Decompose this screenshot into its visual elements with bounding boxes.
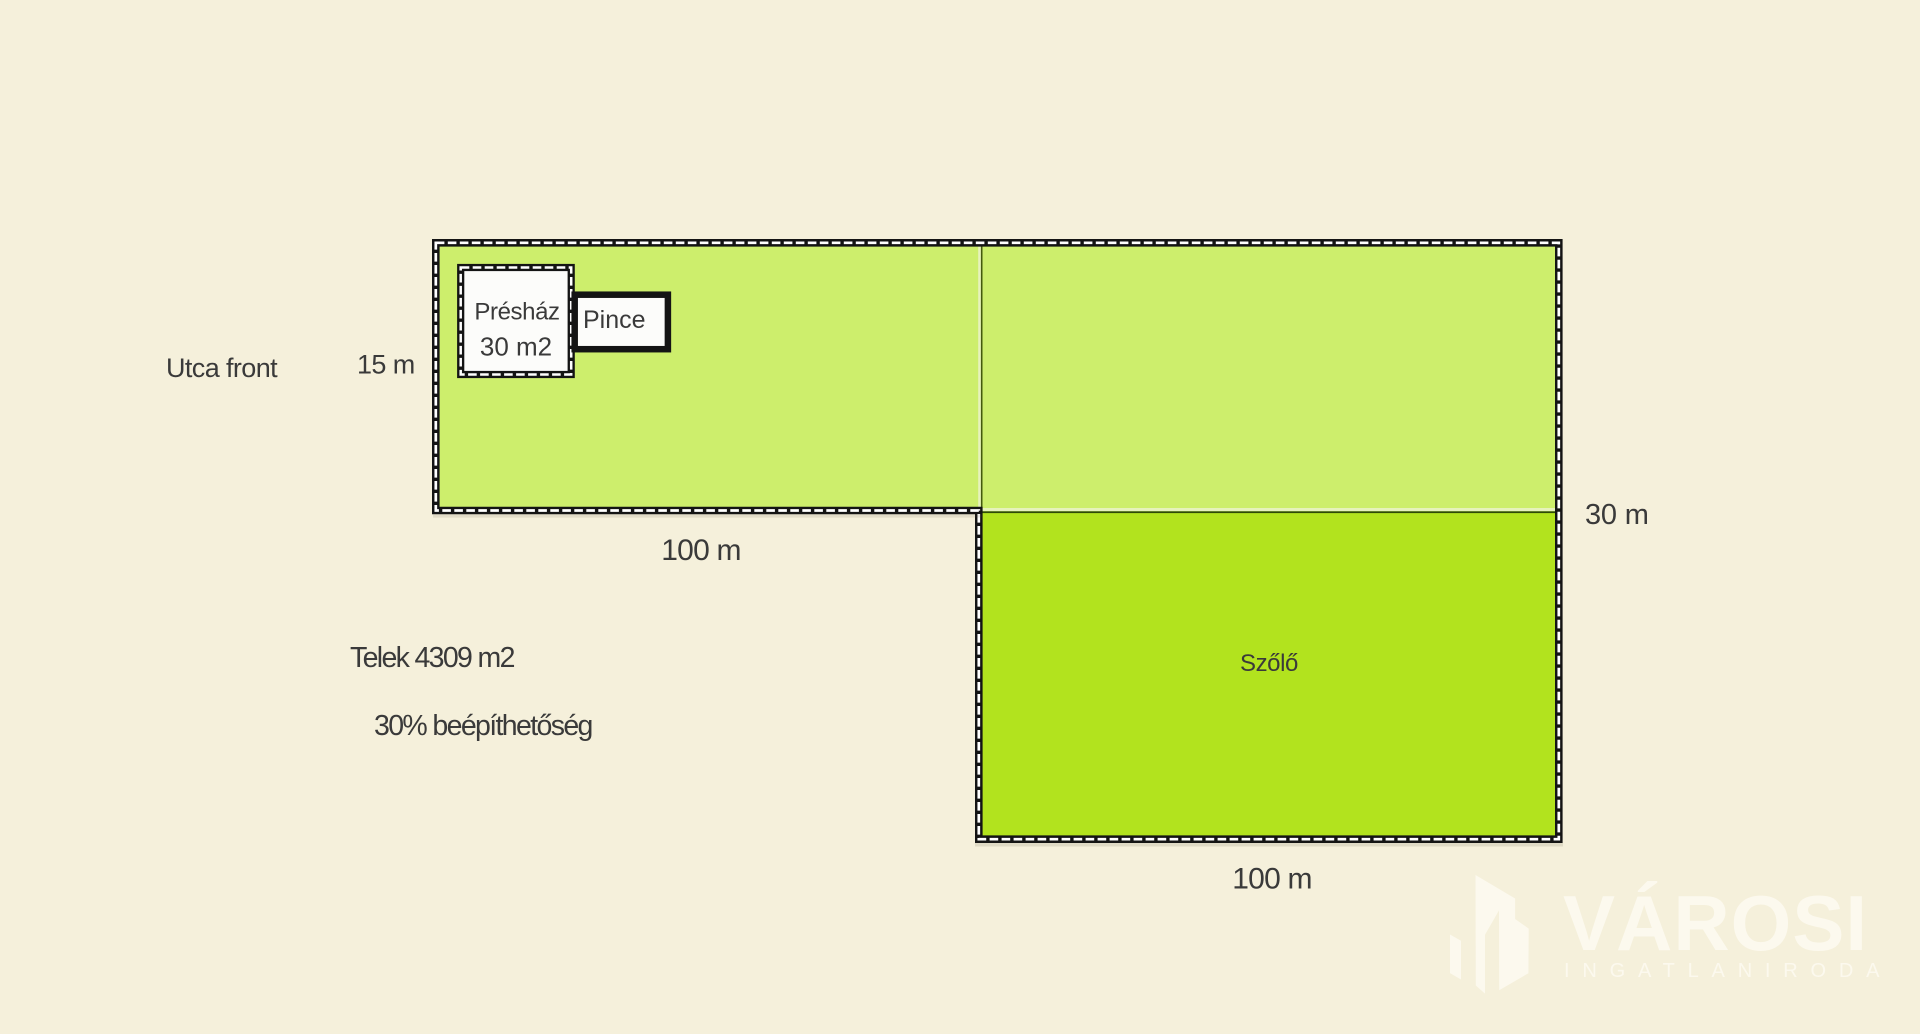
svg-text:INGATLANIRODA: INGATLANIRODA [1564,960,1892,982]
svg-text:Szőlő: Szőlő [1240,650,1298,677]
svg-text:VÁROSI: VÁROSI [1563,879,1868,967]
svg-text:100 m: 100 m [661,534,740,567]
svg-text:Utca front: Utca front [166,353,278,383]
svg-text:30 m: 30 m [1585,499,1649,531]
svg-text:Telek 4309 m2: Telek 4309 m2 [350,642,515,674]
svg-text:Pince: Pince [583,306,646,334]
svg-text:30% beépíthetőség: 30% beépíthetőség [374,710,593,742]
svg-text:Présház: Présház [474,299,559,326]
svg-text:30 m2: 30 m2 [480,332,552,362]
svg-text:100 m: 100 m [1232,863,1311,896]
svg-text:15 m: 15 m [357,350,415,380]
